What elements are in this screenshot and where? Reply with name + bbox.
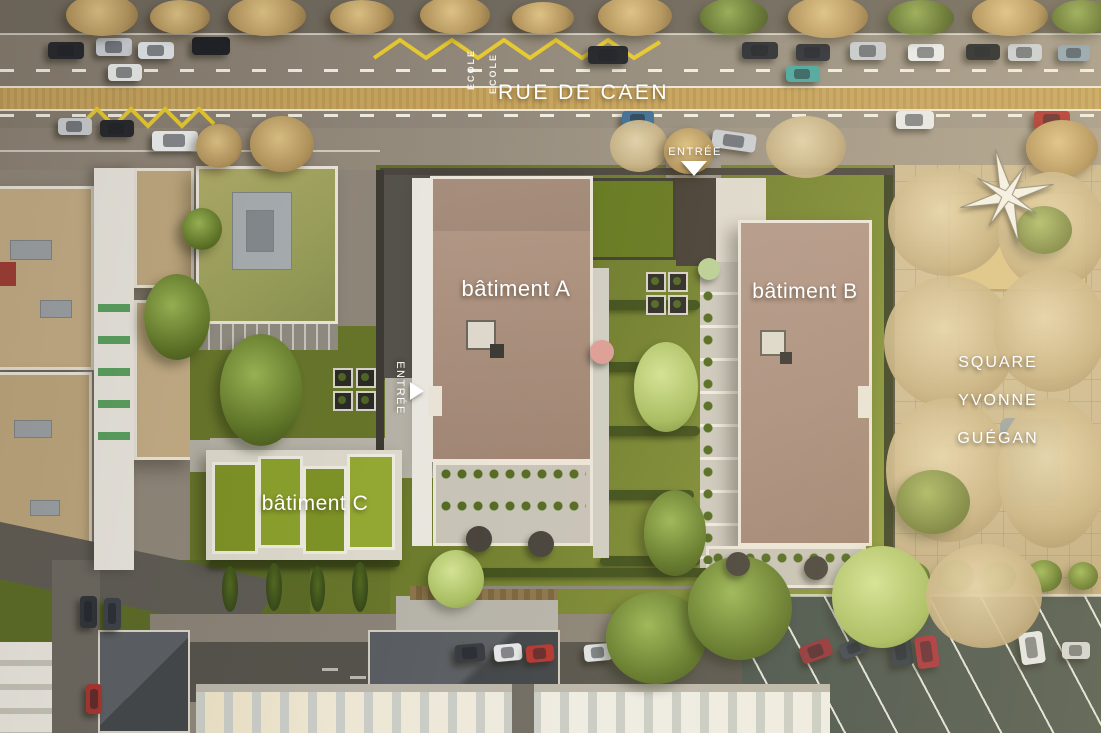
car bbox=[1008, 44, 1042, 61]
entrance-west-label: ENTRÉE bbox=[394, 356, 406, 420]
terrace-plants bbox=[440, 500, 586, 512]
tree-icon bbox=[994, 268, 1101, 392]
building-a-roof-step bbox=[428, 386, 442, 416]
car bbox=[1058, 45, 1090, 61]
building-b-roof-step bbox=[858, 386, 872, 418]
courtyard-green-roof bbox=[588, 178, 676, 260]
tree-icon bbox=[888, 0, 954, 36]
building-b-roof bbox=[738, 220, 872, 546]
car bbox=[786, 66, 820, 82]
tree-icon bbox=[896, 470, 970, 534]
park-name-line1: SQUARE bbox=[948, 354, 1048, 372]
umbrella-icon bbox=[726, 552, 750, 576]
planter-box bbox=[333, 368, 353, 388]
bottom-left-dark-roof-house bbox=[98, 630, 190, 733]
tree-icon bbox=[182, 208, 222, 250]
umbrella-icon bbox=[528, 531, 554, 557]
planter-box bbox=[646, 295, 666, 315]
street-lane-dash-1 bbox=[0, 69, 1101, 72]
entrance-top-label: ENTRÉE bbox=[660, 146, 730, 158]
tree-icon bbox=[330, 0, 394, 34]
tree-icon bbox=[150, 0, 210, 34]
park-name-line3: GUÉGAN bbox=[948, 430, 1048, 448]
car bbox=[138, 42, 174, 59]
tree-icon bbox=[196, 124, 242, 168]
tree-icon bbox=[144, 274, 210, 360]
car bbox=[796, 44, 830, 61]
tree-icon bbox=[512, 2, 574, 34]
car bbox=[850, 42, 886, 60]
cypress-tree-icon bbox=[266, 563, 282, 611]
tree-icon bbox=[832, 546, 932, 648]
building-a-roof-upper-band bbox=[433, 179, 590, 231]
bottom-center-flat-roof bbox=[396, 596, 558, 632]
street-name-label: RUE DE CAEN bbox=[498, 81, 658, 105]
planter-box bbox=[668, 272, 688, 292]
car bbox=[493, 643, 522, 662]
car bbox=[454, 643, 485, 664]
car bbox=[908, 44, 944, 61]
car bbox=[104, 598, 121, 630]
roof-vent bbox=[246, 210, 274, 252]
car bbox=[525, 644, 554, 663]
car bbox=[108, 64, 142, 81]
planter-box bbox=[356, 391, 376, 411]
tree-icon bbox=[766, 116, 846, 178]
car bbox=[742, 42, 778, 59]
umbrella-green-icon bbox=[698, 258, 720, 280]
aerial-site-plan: ECOLE ECOLE RUE DE CAEN bbox=[0, 0, 1101, 733]
car bbox=[152, 131, 198, 151]
building-a-west-facade bbox=[412, 178, 432, 546]
planter-box bbox=[356, 368, 376, 388]
cypress-tree-icon bbox=[352, 562, 368, 612]
car bbox=[80, 596, 97, 628]
zigzag-marking-left bbox=[78, 104, 218, 130]
umbrella-pink-icon bbox=[590, 340, 614, 364]
bottom-white-building-gap bbox=[512, 684, 534, 733]
umbrella-icon bbox=[804, 556, 828, 580]
car bbox=[192, 37, 230, 55]
building-a-roof-hatch bbox=[490, 344, 504, 358]
terrace-plants bbox=[440, 468, 586, 480]
car bbox=[966, 44, 1000, 60]
planter-box bbox=[646, 272, 666, 292]
car bbox=[914, 635, 940, 670]
bottom-left-white-building bbox=[0, 642, 52, 733]
hedge-row bbox=[600, 426, 700, 436]
tree-icon bbox=[250, 116, 314, 172]
bottom-road-mark bbox=[350, 676, 366, 679]
building-c-label: bâtiment C bbox=[240, 492, 390, 516]
building-a-east-balconies bbox=[593, 268, 609, 558]
car bbox=[58, 118, 92, 135]
site-west-wall bbox=[376, 170, 384, 482]
roof-vent bbox=[30, 500, 60, 516]
building-b-roof-hatch bbox=[780, 352, 792, 364]
bush-icon bbox=[1068, 562, 1098, 590]
car bbox=[896, 111, 934, 129]
planter-box bbox=[668, 295, 688, 315]
building-b-label: bâtiment B bbox=[738, 280, 872, 304]
cypress-tree-icon bbox=[222, 566, 238, 612]
car bbox=[100, 120, 134, 137]
cypress-tree-icon bbox=[310, 566, 325, 612]
tree-icon bbox=[644, 490, 706, 576]
building-a-label: bâtiment A bbox=[446, 276, 586, 302]
tree-icon bbox=[998, 398, 1101, 548]
tree-icon bbox=[220, 334, 302, 446]
ecole-road-marking-2: ECOLE bbox=[488, 48, 498, 94]
park-name-line2: YVONNE bbox=[948, 392, 1048, 410]
car bbox=[86, 684, 102, 714]
entrance-arrow-down-icon bbox=[681, 161, 707, 176]
roof-vent bbox=[10, 240, 52, 260]
roof-equipment-red bbox=[0, 262, 16, 286]
planter-box bbox=[333, 391, 353, 411]
courtyard-dark-roof bbox=[676, 178, 718, 266]
car bbox=[96, 38, 132, 56]
car bbox=[1018, 630, 1046, 665]
entrance-arrow-right-icon bbox=[410, 382, 424, 400]
bottom-road-mark bbox=[322, 668, 338, 671]
car bbox=[1062, 642, 1090, 659]
ecole-road-marking-1: ECOLE bbox=[466, 44, 476, 90]
car bbox=[48, 42, 84, 59]
car bbox=[588, 46, 628, 64]
roof-vent bbox=[40, 300, 72, 318]
roof-vent bbox=[14, 420, 52, 438]
tree-icon bbox=[428, 550, 484, 608]
context-tower-green-balconies bbox=[98, 280, 130, 460]
umbrella-icon bbox=[466, 526, 492, 552]
tree-icon bbox=[634, 342, 698, 432]
tree-icon bbox=[926, 544, 1042, 648]
